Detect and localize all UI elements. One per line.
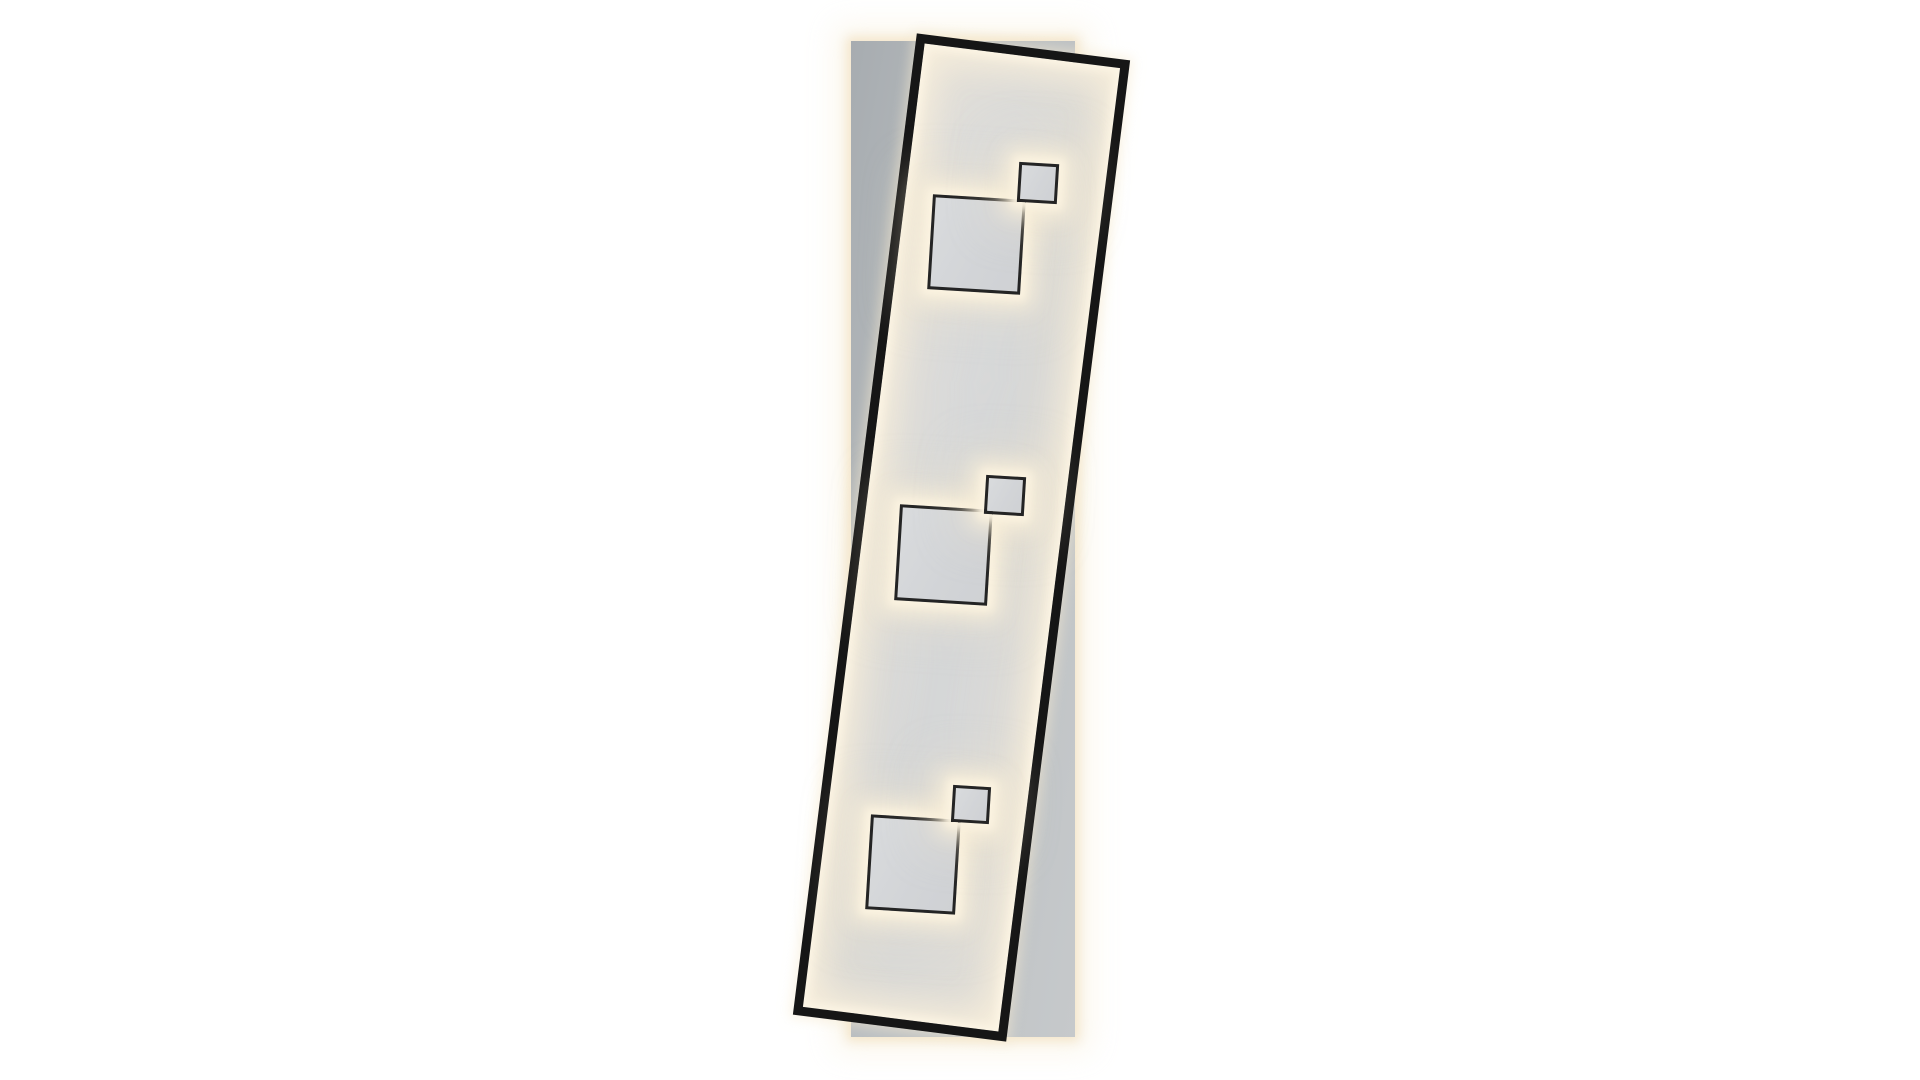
product-photo-led-panel-light bbox=[0, 0, 1920, 1080]
led-square-bottom-small bbox=[951, 785, 991, 824]
led-square-middle-small bbox=[984, 475, 1026, 516]
led-square-top-small bbox=[1017, 162, 1059, 204]
led-square-bottom-large bbox=[865, 814, 961, 914]
led-square-middle-large bbox=[894, 504, 993, 605]
led-square-top-large bbox=[927, 194, 1026, 295]
